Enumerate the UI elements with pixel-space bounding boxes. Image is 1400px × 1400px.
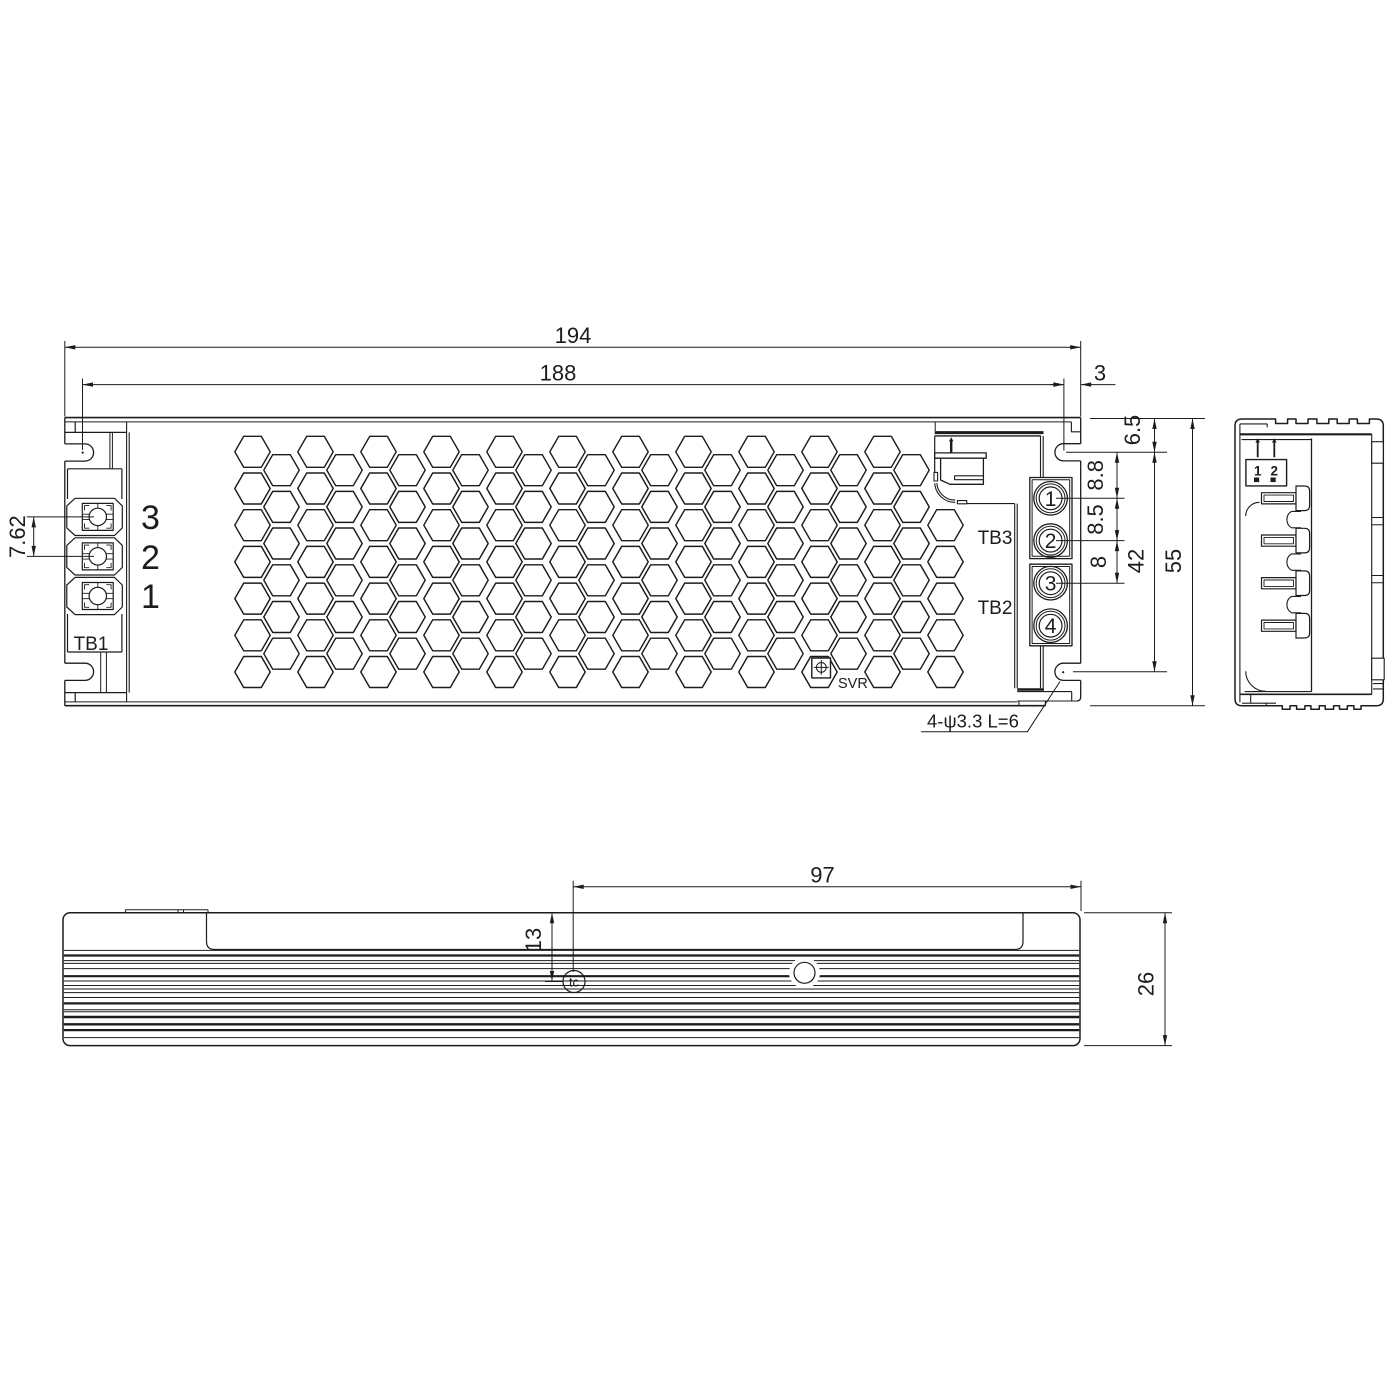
svg-text:4-ψ3.3 L=6: 4-ψ3.3 L=6 [927,711,1019,732]
svg-text:1: 1 [1045,488,1057,511]
svg-text:188: 188 [540,361,577,386]
svg-text:1: 1 [1254,464,1262,479]
svg-text:3: 3 [1045,573,1057,596]
svg-text:SVR: SVR [838,676,868,692]
svg-text:TB3: TB3 [978,528,1013,549]
svg-text:2: 2 [1271,464,1279,479]
svg-text:TB1: TB1 [74,634,109,655]
svg-text:3: 3 [141,499,160,537]
svg-text:7.62: 7.62 [5,515,30,558]
svg-text:8.8: 8.8 [1083,460,1108,491]
svg-text:3: 3 [1094,361,1106,386]
svg-text:2: 2 [141,539,160,577]
svg-text:4: 4 [1045,615,1057,638]
svg-text:13: 13 [521,928,546,952]
svg-text:26: 26 [1134,972,1159,996]
svg-text:8: 8 [1086,556,1111,568]
svg-text:194: 194 [555,323,592,348]
svg-text:8.5: 8.5 [1083,504,1108,535]
svg-text:6.5: 6.5 [1120,415,1145,446]
svg-text:TB2: TB2 [978,598,1013,619]
svg-text:2: 2 [1045,530,1057,553]
svg-text:97: 97 [810,863,834,888]
svg-text:42: 42 [1124,549,1149,573]
svg-text:tc: tc [569,975,580,990]
svg-text:55: 55 [1161,549,1186,573]
svg-text:1: 1 [141,578,160,616]
